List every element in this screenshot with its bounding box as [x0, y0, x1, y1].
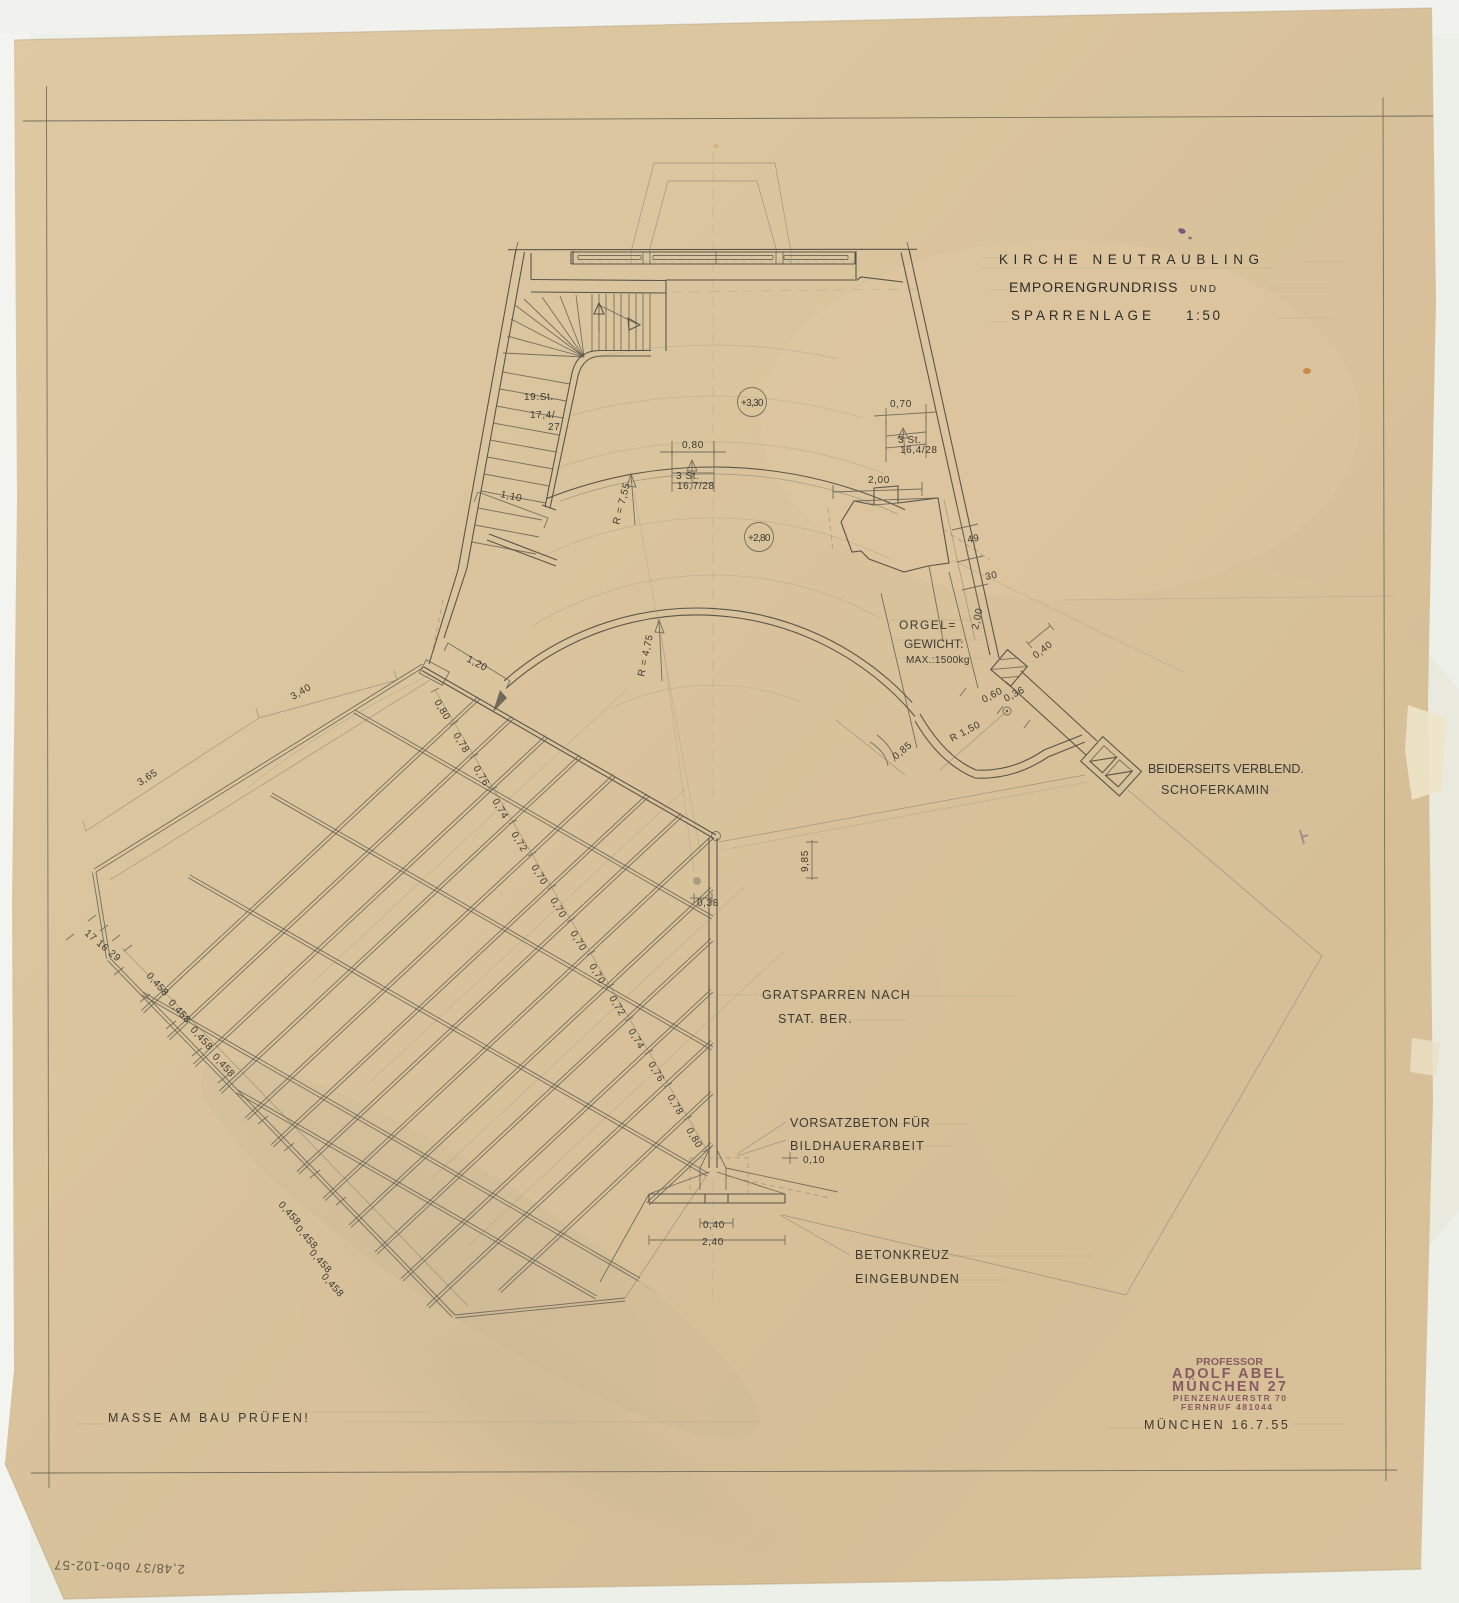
svg-text:BETONKREUZ: BETONKREUZ [855, 1248, 951, 1262]
svg-text:MÜNCHEN 16.7.55: MÜNCHEN 16.7.55 [1144, 1418, 1290, 1432]
svg-text:UND: UND [1190, 284, 1218, 295]
svg-text:MASSE AM BAU PRÜFEN!: MASSE AM BAU PRÜFEN! [108, 1411, 310, 1425]
svg-text:+2,80: +2,80 [748, 533, 771, 544]
svg-text:2,40: 2,40 [702, 1237, 724, 1248]
svg-text:2,00: 2,00 [868, 475, 890, 486]
svg-text:19.St.: 19.St. [524, 392, 554, 403]
svg-text:1:50: 1:50 [1186, 308, 1224, 323]
svg-text:ORGEL=: ORGEL= [899, 618, 957, 632]
svg-text:STAT. BER.: STAT. BER. [778, 1012, 854, 1026]
svg-text:9,85: 9,85 [800, 850, 811, 872]
svg-text:+3,30: +3,30 [741, 398, 764, 409]
svg-text:16,4/28: 16,4/28 [900, 445, 938, 456]
svg-text:0,10: 0,10 [803, 1155, 825, 1166]
svg-text:BILDHAUERARBEIT: BILDHAUERARBEIT [790, 1139, 926, 1153]
svg-text:EINGEBUNDEN: EINGEBUNDEN [855, 1272, 961, 1286]
svg-text:17,4/: 17,4/ [530, 410, 555, 421]
svg-text:KIRCHE NEUTRAUBLING: KIRCHE NEUTRAUBLING [999, 252, 1263, 267]
svg-text:0,70: 0,70 [890, 399, 912, 410]
svg-text:27: 27 [548, 422, 560, 433]
svg-text:16,7/28: 16,7/28 [677, 481, 715, 492]
svg-text:FERNRUF 481044: FERNRUF 481044 [1181, 1402, 1272, 1412]
svg-text:GEWICHT:: GEWICHT: [904, 637, 965, 651]
svg-text:EMPORENGRUNDRISS: EMPORENGRUNDRISS [1009, 279, 1179, 295]
svg-text:SCHOFERKAMIN: SCHOFERKAMIN [1161, 783, 1271, 797]
svg-text:0,80: 0,80 [682, 440, 704, 451]
svg-text:VORSATZBETON FÜR: VORSATZBETON FÜR [790, 1116, 932, 1130]
svg-text:0,38: 0,38 [697, 898, 719, 909]
svg-text:BEIDERSEITS VERBLEND.: BEIDERSEITS VERBLEND. [1148, 762, 1306, 776]
svg-text:MAX.:1500kg: MAX.:1500kg [906, 655, 970, 666]
svg-text:SPARRENLAGE: SPARRENLAGE [1011, 308, 1155, 323]
svg-text:0,40: 0,40 [703, 1220, 725, 1231]
svg-text:GRATSPARREN NACH: GRATSPARREN NACH [762, 988, 912, 1002]
